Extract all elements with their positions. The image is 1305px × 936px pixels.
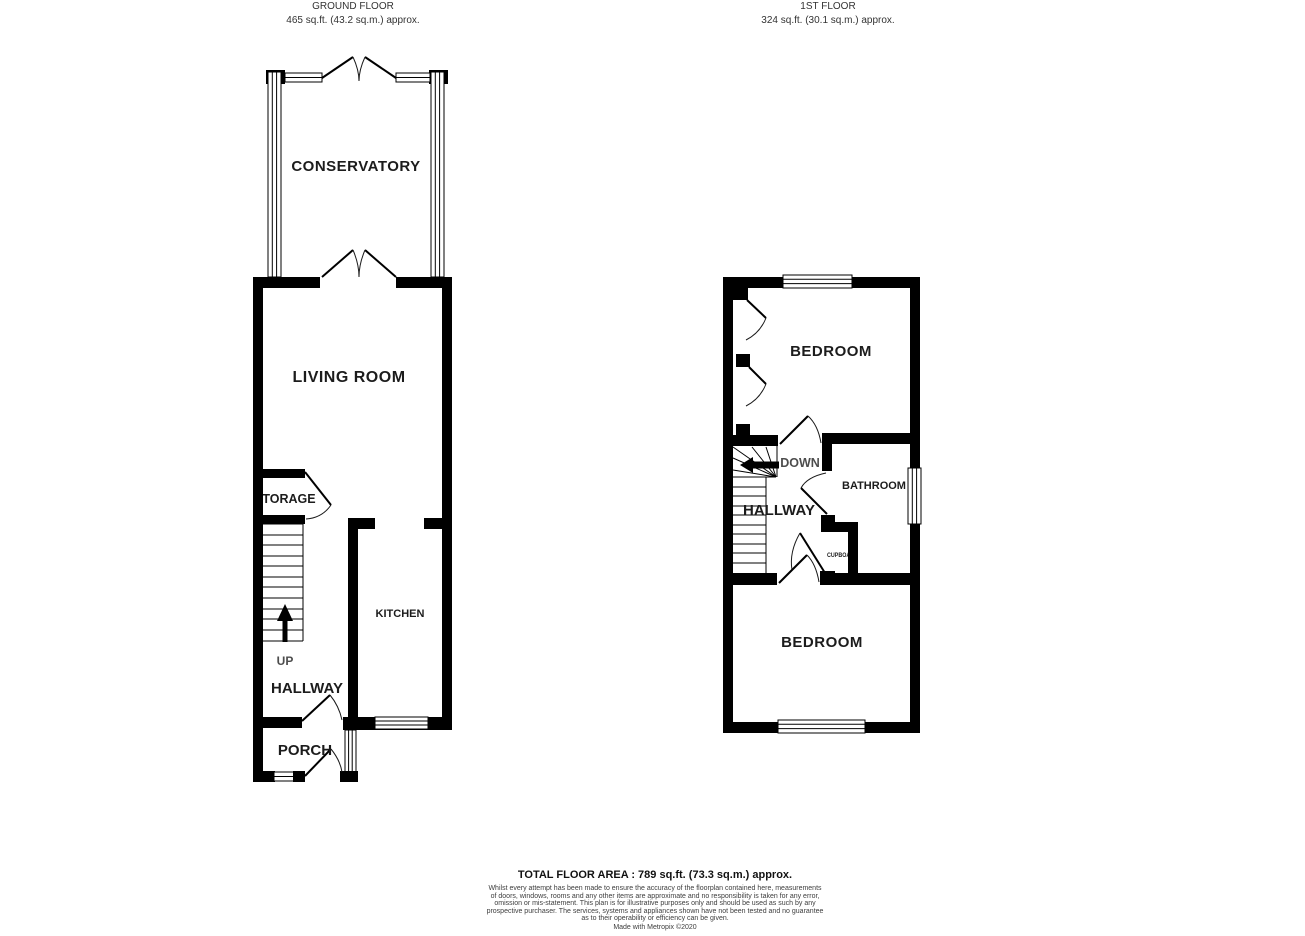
wall-top — [253, 277, 320, 288]
room-label-living-room: LIVING ROOM — [292, 369, 405, 386]
room-label-bedroom-bottom: BEDROOM — [781, 634, 863, 651]
up-arrow-icon — [277, 604, 293, 642]
porch-wall — [253, 717, 302, 728]
wall — [343, 717, 358, 730]
conservatory-window-wall-right — [431, 72, 444, 277]
wall-top — [723, 277, 783, 288]
conservatory-top-window — [285, 73, 430, 82]
wall-left — [723, 277, 733, 733]
wall-top — [852, 277, 920, 288]
stairs-down-label: DOWN — [780, 456, 820, 470]
wall-left — [253, 277, 263, 782]
wardrobe-doors — [733, 288, 766, 437]
kitchen-wall-top — [424, 518, 452, 529]
bedroom-wall-top — [723, 573, 777, 585]
hallway-porch-door — [302, 695, 342, 721]
porch-wall-bottom — [293, 771, 305, 782]
wall — [820, 571, 835, 585]
wall-top — [396, 277, 452, 288]
room-label-conservatory: CONSERVATORY — [291, 158, 420, 175]
ground-floor-area: 465 sq.ft. (43.2 sq.m.) approx. — [253, 14, 453, 28]
ground-floor-header: GROUND FLOOR 465 sq.ft. (43.2 sq.m.) app… — [253, 0, 453, 28]
first-floor-plan: CUPBOARD — [715, 270, 930, 740]
disclaimer-line: prospective purchaser. The services, sys… — [430, 908, 880, 916]
floorplan-page: GROUND FLOOR 465 sq.ft. (43.2 sq.m.) app… — [0, 0, 1305, 936]
disclaimer-line: Whilst every attempt has been made to en… — [430, 885, 880, 893]
kitchen-window — [375, 717, 428, 729]
room-label-kitchen: KITCHEN — [376, 608, 425, 620]
porch-wall-bottom — [253, 771, 275, 782]
storage-wall — [263, 469, 305, 478]
wall-right — [442, 277, 452, 730]
kitchen-wall-left — [348, 518, 358, 730]
living-room-double-door — [322, 250, 396, 277]
total-floor-area: TOTAL FLOOR AREA : 789 sq.ft. (73.3 sq.m… — [430, 869, 880, 881]
conservatory-window-wall-left — [268, 72, 281, 277]
disclaimer-line: of doors, windows, rooms and any other i… — [430, 893, 880, 901]
wall-bottom — [865, 722, 920, 733]
ground-floor-plan: STORAGE — [245, 55, 460, 795]
room-label-hallway-first: HALLWAY — [743, 502, 815, 519]
stair-wall — [733, 435, 778, 446]
wall-bottom — [723, 722, 778, 733]
bathroom-wall-top — [822, 433, 920, 444]
room-label-storage: STORAGE — [254, 492, 316, 506]
disclaimer-line: as to their operability or efficiency ca… — [430, 915, 880, 923]
bedroom-top-window — [783, 275, 852, 288]
conservatory-outer-double-door — [322, 57, 396, 81]
disclaimer-line: omission or mis-statement. This plan is … — [430, 900, 880, 908]
bedroom-wall-top — [835, 573, 920, 585]
first-floor-area: 324 sq.ft. (30.1 sq.m.) approx. — [728, 14, 928, 28]
bedroom-bottom-door — [779, 555, 819, 583]
first-floor-header: 1ST FLOOR 324 sq.ft. (30.1 sq.m.) approx… — [728, 0, 928, 28]
porch-side-window — [345, 730, 356, 772]
wall — [340, 771, 358, 782]
storage-wall — [263, 515, 305, 524]
down-arrow-icon — [740, 457, 779, 473]
porch-front-window — [274, 772, 294, 781]
metropix-credit: Made with Metropix ©2020 — [430, 924, 880, 931]
stairs-up-label: UP — [277, 654, 294, 668]
room-label-bedroom-top: BEDROOM — [790, 343, 872, 360]
footer: TOTAL FLOOR AREA : 789 sq.ft. (73.3 sq.m… — [430, 869, 880, 931]
disclaimer: Whilst every attempt has been made to en… — [430, 885, 880, 923]
bathroom-wall-left — [822, 433, 832, 471]
room-label-bathroom: BATHROOM — [842, 480, 906, 492]
room-label-hallway-ground: HALLWAY — [271, 680, 343, 697]
first-floor-title: 1ST FLOOR — [728, 0, 928, 14]
room-label-porch: PORCH — [278, 742, 332, 759]
bathroom-window — [908, 468, 921, 524]
bedroom-top-door — [780, 416, 821, 444]
bedroom-bottom-window — [778, 720, 865, 733]
ground-floor-title: GROUND FLOOR — [253, 0, 453, 14]
stairs-ground-floor — [263, 524, 303, 642]
kitchen-wall-top — [348, 518, 375, 529]
